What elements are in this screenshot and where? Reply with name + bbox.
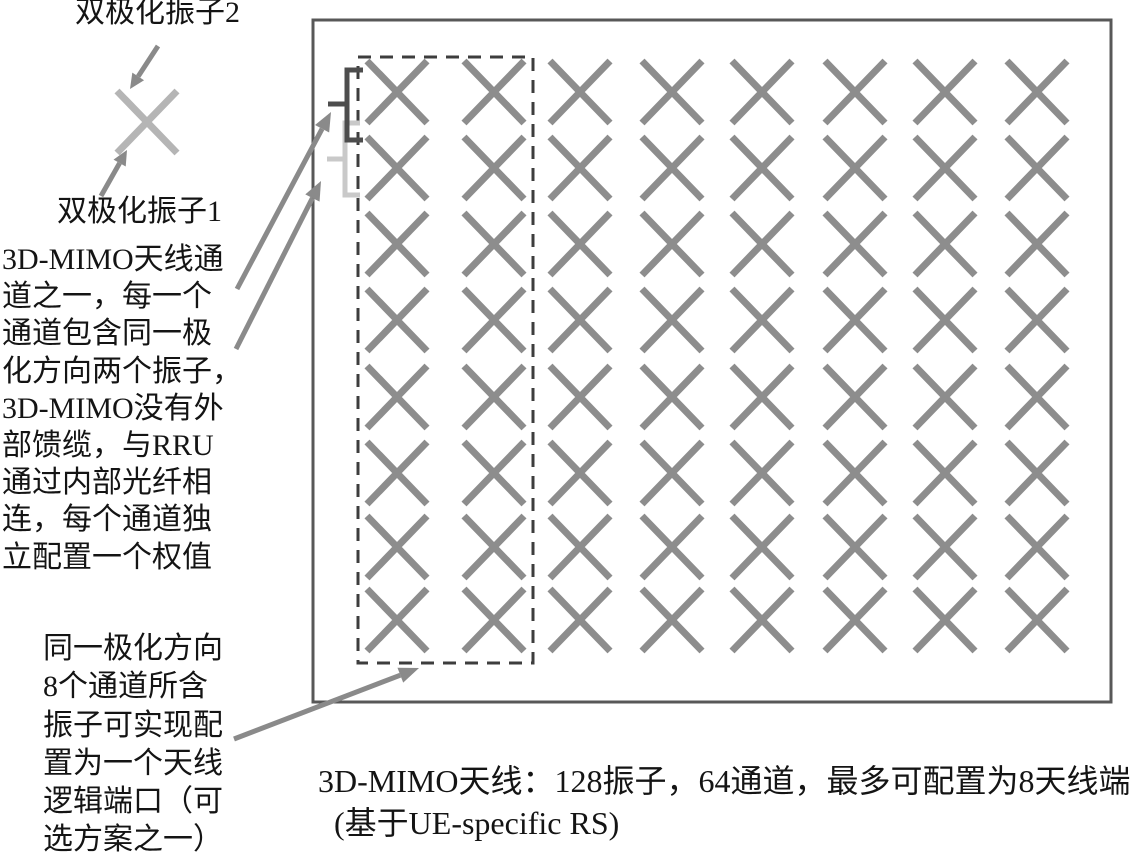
antenna-element-icon bbox=[550, 442, 610, 504]
dual-pol-element-icon bbox=[117, 91, 177, 153]
antenna-element-icon bbox=[464, 442, 524, 504]
antenna-element-icon bbox=[367, 61, 427, 123]
antenna-element-icon bbox=[464, 516, 524, 578]
annotation-line: 3D-MIMO天线通 bbox=[2, 241, 242, 278]
annotation-line: 逻辑端口（可 bbox=[43, 783, 223, 821]
antenna-element-icon bbox=[1007, 589, 1067, 651]
antenna-element-icon bbox=[915, 589, 975, 651]
legend-element1-arrow-icon bbox=[101, 163, 120, 196]
antenna-element-icon bbox=[464, 289, 524, 351]
antenna-element-icon bbox=[367, 516, 427, 578]
legend-element2-label: 双极化振子2 bbox=[75, 0, 240, 29]
antenna-element-icon bbox=[1007, 61, 1067, 123]
antenna-element-icon bbox=[732, 366, 792, 428]
antenna-panel-outline bbox=[313, 20, 1111, 702]
antenna-element-icon bbox=[464, 589, 524, 651]
antenna-element-icon bbox=[732, 213, 792, 275]
antenna-element-icon bbox=[825, 213, 885, 275]
antenna-element-icon bbox=[1007, 366, 1067, 428]
antenna-element-icon bbox=[550, 589, 610, 651]
antenna-element-icon bbox=[367, 589, 427, 651]
antenna-element-icon bbox=[550, 137, 610, 199]
antenna-element-icon bbox=[732, 137, 792, 199]
antenna-element-icon bbox=[915, 137, 975, 199]
antenna-element-icon bbox=[642, 589, 702, 651]
antenna-element-icon bbox=[550, 366, 610, 428]
channel-group-dashed-outline bbox=[358, 57, 533, 663]
antenna-element-icon bbox=[642, 366, 702, 428]
antenna-element-icon bbox=[1007, 289, 1067, 351]
antenna-element-icon bbox=[550, 213, 610, 275]
annotation-line: 置为一个天线 bbox=[43, 745, 223, 783]
antenna-element-icon bbox=[642, 61, 702, 123]
antenna-element-icon bbox=[1007, 213, 1067, 275]
bottom-left-annotation: 同一极化方向 8个通道所含 振子可实现配 置为一个天线 逻辑端口（可 选方案之一… bbox=[43, 630, 223, 860]
annotation-line: 8个通道所含 bbox=[43, 668, 223, 706]
antenna-element-icon bbox=[642, 289, 702, 351]
legend-element1-label: 双极化振子1 bbox=[57, 196, 222, 228]
annotation-line: 通道包含同一极 bbox=[2, 315, 242, 352]
antenna-element-icon bbox=[642, 213, 702, 275]
antenna-element-icon bbox=[825, 366, 885, 428]
antenna-element-icon bbox=[915, 442, 975, 504]
antenna-element-icon bbox=[550, 61, 610, 123]
antenna-element-icon bbox=[1007, 137, 1067, 199]
antenna-element-icon bbox=[367, 366, 427, 428]
antenna-element-icon bbox=[550, 516, 610, 578]
antenna-element-icon bbox=[825, 289, 885, 351]
antenna-element-icon bbox=[642, 516, 702, 578]
antenna-element-icon bbox=[732, 589, 792, 651]
annotation-line: 部馈缆，与RRU bbox=[2, 427, 242, 464]
antenna-element-icon bbox=[464, 137, 524, 199]
antenna-element-icon bbox=[367, 213, 427, 275]
annotation-line: 3D-MIMO没有外 bbox=[2, 390, 242, 427]
antenna-element-icon bbox=[825, 137, 885, 199]
annotation-line: 连，每个通道独 bbox=[2, 501, 242, 538]
annotation-line: 同一极化方向 bbox=[43, 630, 223, 668]
antenna-element-icon bbox=[464, 213, 524, 275]
channel-bracket-pol2-icon bbox=[328, 70, 363, 140]
annotation-line: 选方案之一） bbox=[43, 821, 223, 859]
legend-element2-arrow-icon bbox=[138, 46, 158, 76]
annotation-line: 道之一，每一个 bbox=[2, 278, 242, 315]
antenna-element-icon bbox=[915, 61, 975, 123]
left-annotation: 3D-MIMO天线通 道之一，每一个 通道包含同一极 化方向两个振子， 3D-M… bbox=[2, 241, 242, 576]
antenna-element-icon bbox=[642, 442, 702, 504]
antenna-element-icon bbox=[915, 289, 975, 351]
antenna-element-icon bbox=[915, 516, 975, 578]
antenna-element-icon bbox=[732, 516, 792, 578]
annotation-line: 化方向两个振子， bbox=[2, 353, 242, 390]
antenna-element-icon bbox=[464, 61, 524, 123]
antenna-element-icon bbox=[732, 61, 792, 123]
annotation-line: 通过内部光纤相 bbox=[2, 464, 242, 501]
antenna-element-icon bbox=[550, 289, 610, 351]
antenna-element-icon bbox=[915, 213, 975, 275]
antenna-element-icon bbox=[367, 137, 427, 199]
antenna-element-icon bbox=[825, 516, 885, 578]
antenna-element-icon bbox=[732, 442, 792, 504]
antenna-element-icon bbox=[825, 442, 885, 504]
antenna-element-icon bbox=[642, 137, 702, 199]
antenna-element-icon bbox=[825, 589, 885, 651]
antenna-element-icon bbox=[825, 61, 885, 123]
figure-caption-line1: 3D-MIMO天线：128振子，64通道，最多可配置为8天线端口 bbox=[318, 763, 1130, 799]
antenna-element-icon bbox=[367, 289, 427, 351]
antenna-element-icon bbox=[464, 366, 524, 428]
antenna-element-icon bbox=[1007, 516, 1067, 578]
channel-bracket-pol1-icon bbox=[327, 123, 360, 195]
annotation-line: 立配置一个权值 bbox=[2, 539, 242, 576]
logical-port-pointer-arrow-icon-head bbox=[397, 668, 419, 683]
antenna-element-icon bbox=[732, 289, 792, 351]
annotation-line: 振子可实现配 bbox=[43, 707, 223, 745]
antenna-element-icon bbox=[367, 442, 427, 504]
figure-caption-line2: (基于UE-specific RS) bbox=[334, 805, 619, 841]
antenna-element-icon bbox=[1007, 442, 1067, 504]
antenna-element-icon bbox=[915, 366, 975, 428]
logical-port-pointer-arrow-icon bbox=[234, 675, 400, 739]
